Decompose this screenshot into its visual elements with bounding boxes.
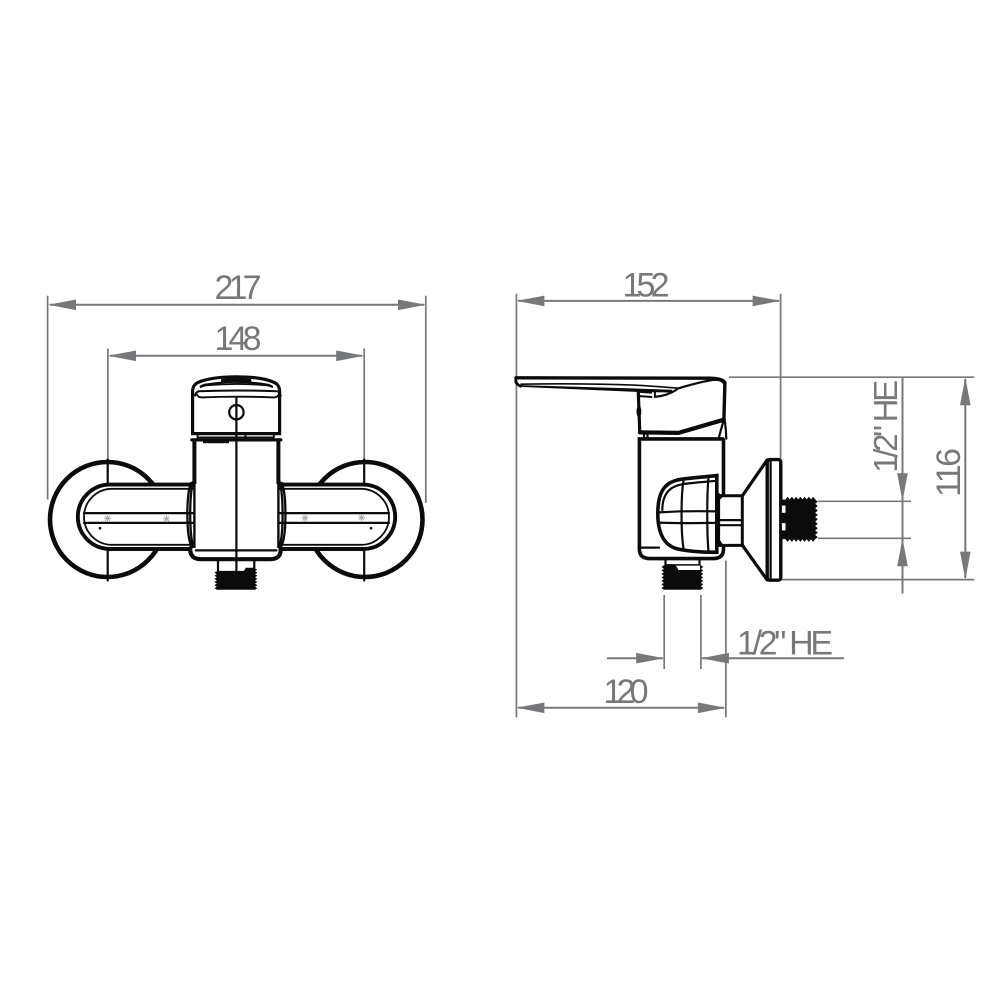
svg-text:217: 217: [215, 269, 262, 307]
svg-text:1/2" HE: 1/2" HE: [867, 380, 904, 473]
svg-text:116: 116: [930, 448, 968, 497]
svg-text:1/2" HE: 1/2" HE: [737, 625, 833, 663]
svg-text:148: 148: [215, 320, 262, 358]
svg-text:120: 120: [604, 673, 649, 711]
svg-text:152: 152: [623, 267, 670, 305]
